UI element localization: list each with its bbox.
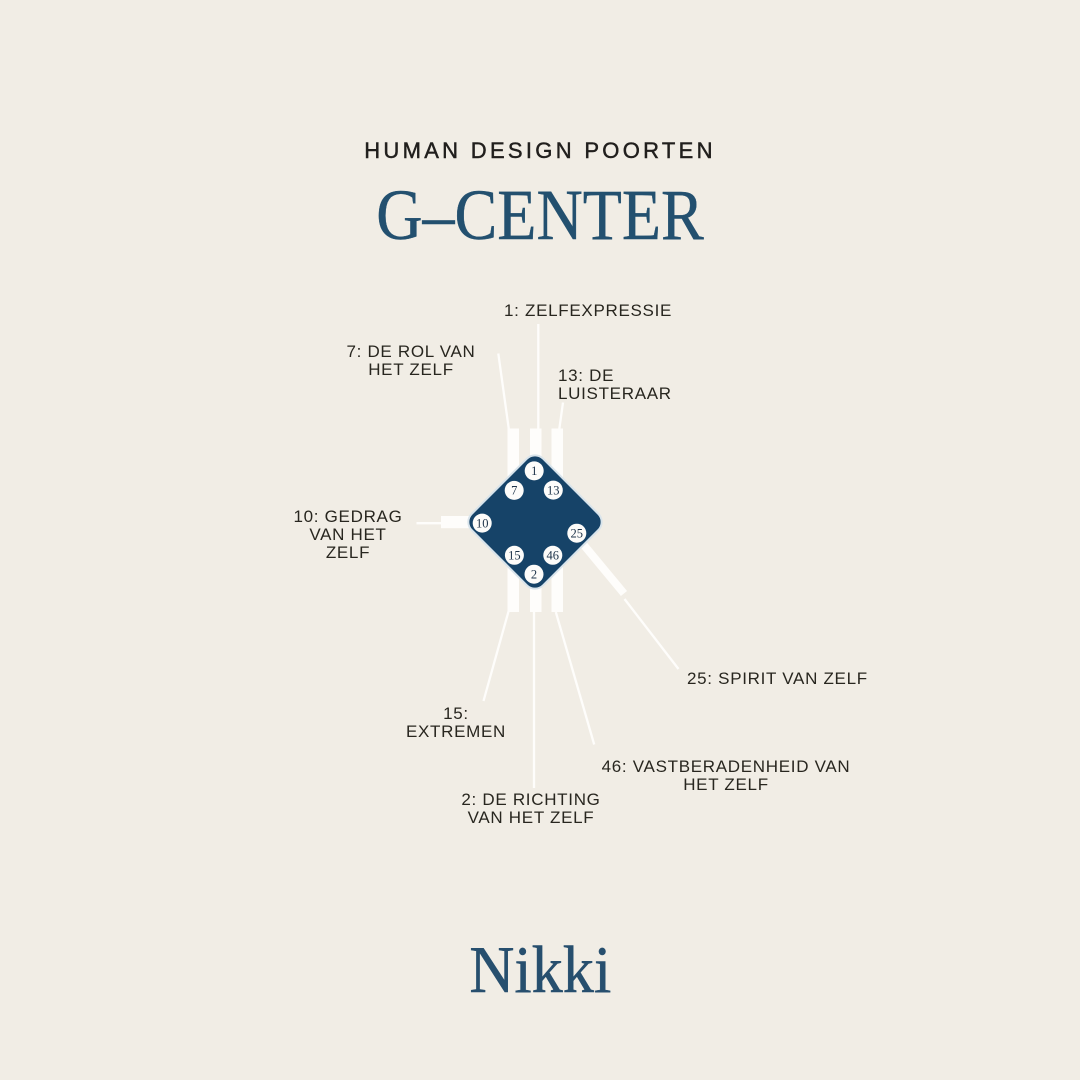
svg-text:46: 46 (547, 549, 560, 563)
svg-text:25: 25 (571, 527, 584, 541)
svg-text:10: 10 (476, 516, 489, 530)
svg-text:15: 15 (508, 549, 521, 563)
svg-text:13: 13 (547, 483, 560, 497)
svg-text:2: 2 (531, 568, 537, 582)
svg-text:7: 7 (511, 484, 517, 498)
svg-text:1: 1 (531, 464, 537, 478)
